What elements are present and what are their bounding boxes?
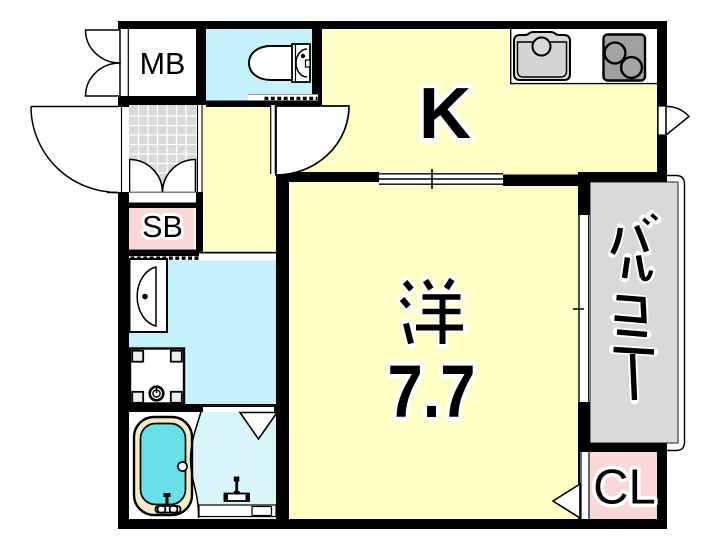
svg-text:K: K bbox=[419, 73, 471, 154]
svg-text:MB: MB bbox=[140, 47, 186, 81]
svg-text:CL: CL bbox=[593, 461, 656, 515]
svg-text:7.7: 7.7 bbox=[388, 350, 476, 433]
svg-text:SB: SB bbox=[142, 210, 183, 244]
